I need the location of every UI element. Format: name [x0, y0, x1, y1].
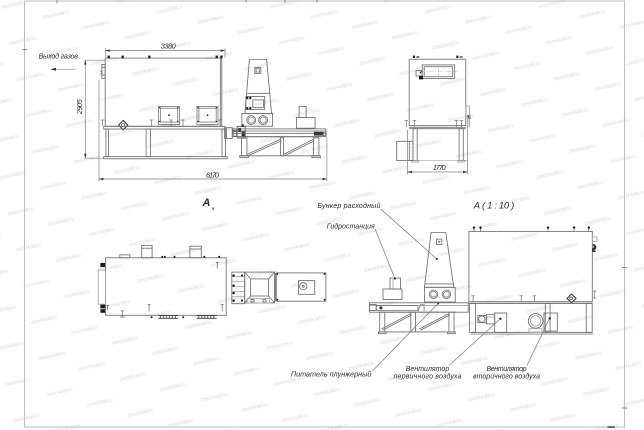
- svg-text:Вентилятор: Вентилятор: [487, 366, 527, 373]
- svg-text:Гидростанция: Гидростанция: [327, 222, 375, 230]
- svg-text:Бункер расходный: Бункер расходный: [317, 202, 380, 210]
- svg-text:Выход газов: Выход газов: [39, 52, 79, 61]
- svg-text:А: А: [202, 197, 211, 209]
- svg-text:3380: 3380: [161, 42, 177, 51]
- svg-text:6170: 6170: [206, 171, 220, 180]
- svg-text:Вентилятор: Вентилятор: [406, 366, 450, 373]
- svg-text:вторичного воздуха: вторичного воздуха: [473, 373, 540, 381]
- svg-text:первичного воздуха: первичного воздуха: [394, 373, 462, 381]
- svg-text:1770: 1770: [433, 163, 447, 172]
- svg-text:А ( 1 : 10 ): А ( 1 : 10 ): [473, 200, 515, 211]
- svg-text:2905: 2905: [75, 98, 84, 115]
- svg-text:Питатель плунжерный: Питатель плунжерный: [291, 370, 372, 379]
